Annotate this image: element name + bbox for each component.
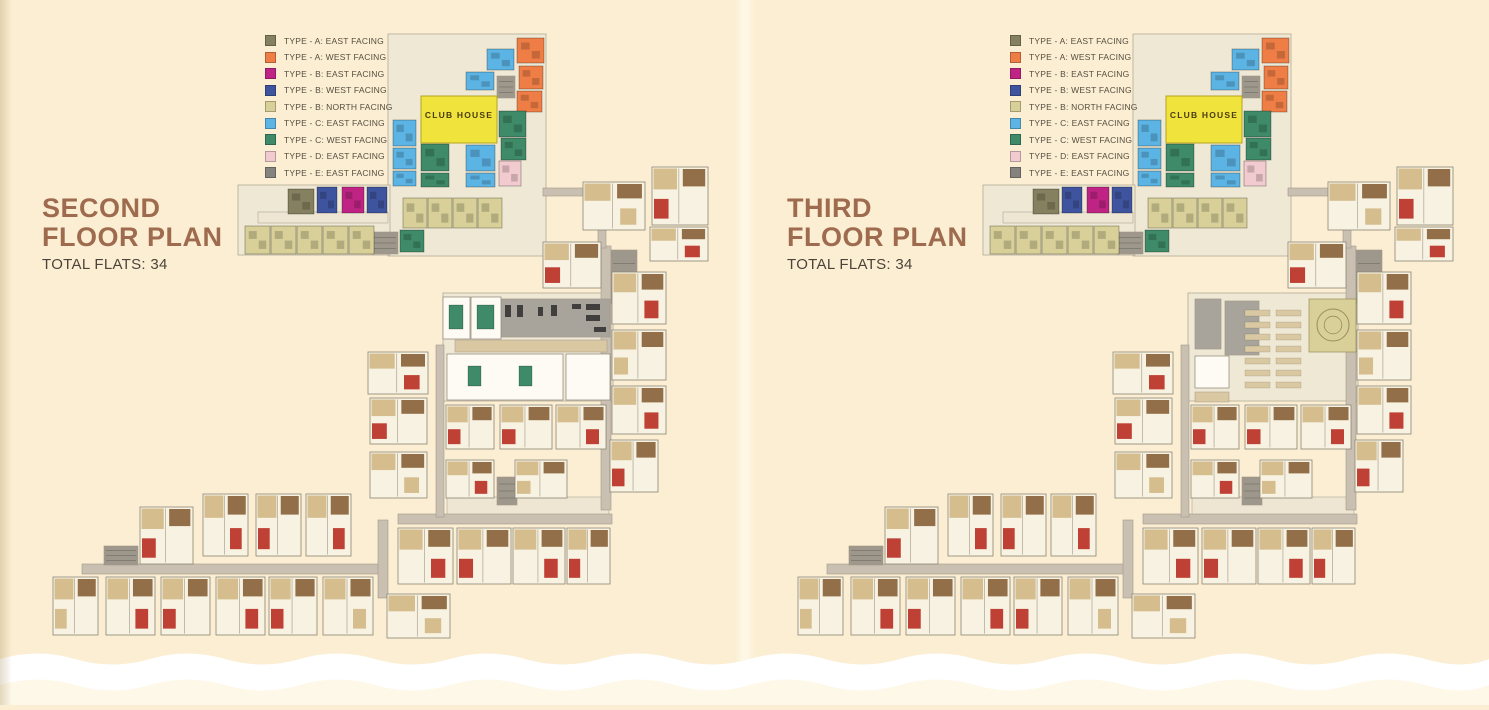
- flat-furniture: [908, 579, 929, 600]
- flat-furniture: [163, 609, 176, 629]
- flat-detail: [521, 43, 530, 50]
- amenity-room: [1195, 356, 1229, 388]
- clubhouse-label: CLUB HOUSE: [1170, 110, 1238, 120]
- flat-furniture: [880, 609, 893, 629]
- flat-furniture: [401, 354, 425, 367]
- page-third-floor: CLUB HOUSE TYPE - A: EAST FACINGTYPE - A…: [745, 0, 1489, 705]
- flat-furniture: [372, 400, 396, 417]
- flat-furniture: [823, 579, 841, 596]
- typed-flat-block: [1211, 173, 1240, 187]
- flat-furniture: [614, 332, 637, 350]
- flat-detail: [292, 194, 300, 201]
- flat-detail: [1260, 149, 1268, 156]
- typed-flat-block: [466, 145, 495, 171]
- flat-furniture: [614, 388, 637, 405]
- flat-furniture: [1247, 407, 1269, 423]
- legend-row: TYPE - C: WEST FACING: [1010, 134, 1138, 145]
- flat-furniture: [142, 538, 156, 557]
- typed-flat-block: [517, 38, 544, 63]
- flat-unit: [1397, 167, 1453, 225]
- flat-detail: [425, 149, 434, 157]
- typed-flat: [428, 198, 452, 228]
- typed-flat: [342, 187, 364, 213]
- typed-flat: [453, 198, 477, 228]
- legend-swatch: [265, 134, 276, 145]
- typed-flat-block: [297, 226, 322, 254]
- flat-furniture: [353, 609, 366, 629]
- legend-label: TYPE - D: EAST FACING: [284, 151, 385, 161]
- typed-flat-block: [1112, 187, 1132, 213]
- flat-unit: [370, 398, 427, 444]
- flat-detail: [1073, 201, 1079, 209]
- page-second-floor: CLUB HOUSE TYPE - A: EAST FACINGTYPE - A…: [0, 0, 744, 705]
- flat-furniture: [1389, 301, 1403, 319]
- legend-swatch: [265, 35, 276, 46]
- typed-flat: [517, 91, 542, 112]
- typed-flat-block: [393, 120, 416, 146]
- typed-flat: [499, 161, 521, 186]
- flat-unit: [323, 577, 373, 635]
- flat-unit: [53, 577, 98, 635]
- typed-flat: [323, 226, 348, 254]
- flat-furniture: [1117, 454, 1141, 471]
- brochure-spread: { "pages": [ {"title_line1":"SECOND","ti…: [0, 0, 1489, 705]
- corridor: [82, 564, 380, 574]
- flat-furniture: [887, 538, 901, 557]
- flat-furniture: [1146, 454, 1169, 468]
- page-title-line-1: THIRD: [787, 194, 968, 223]
- flat-detail: [1151, 134, 1158, 142]
- flat-furniture: [642, 388, 664, 402]
- typed-flat: [1112, 187, 1132, 213]
- flat-unit: [368, 352, 428, 394]
- theatre-seat-row: [1276, 310, 1301, 316]
- typed-flat: [245, 226, 270, 254]
- legend-label: TYPE - C: WEST FACING: [1029, 135, 1132, 145]
- flat-furniture: [545, 267, 560, 283]
- flat-furniture: [1220, 481, 1232, 494]
- flat-furniture: [1399, 199, 1414, 219]
- flat-furniture: [612, 442, 632, 461]
- flat-detail: [1215, 75, 1224, 80]
- flat-furniture: [448, 462, 468, 476]
- typed-flat: [1264, 66, 1288, 89]
- flat-furniture: [135, 609, 148, 629]
- corridor: [378, 520, 388, 598]
- flat-detail: [285, 241, 293, 249]
- flat-furniture: [682, 229, 705, 239]
- typed-flat-block: [1211, 145, 1240, 171]
- flat-detail: [1247, 166, 1254, 173]
- flat-furniture: [1193, 429, 1205, 444]
- flat-detail: [259, 241, 267, 249]
- flat-furniture: [1176, 559, 1190, 578]
- flat-furniture: [558, 407, 579, 423]
- typed-flat-block: [1016, 226, 1041, 254]
- typed-flat: [1087, 187, 1109, 213]
- flat-furniture: [55, 579, 74, 600]
- flat-furniture: [1217, 407, 1236, 420]
- corridor: [827, 564, 1125, 574]
- flat-furniture: [1149, 477, 1164, 493]
- flat-furniture: [1330, 184, 1356, 201]
- flat-unit: [567, 528, 610, 584]
- legend-swatch: [1010, 52, 1021, 63]
- total-flats-label: TOTAL FLATS: 34: [787, 256, 968, 273]
- flat-furniture: [475, 481, 487, 494]
- theatre-seat-row: [1276, 382, 1301, 388]
- amenity-room-tan: [1195, 392, 1229, 402]
- flat-furniture: [644, 412, 658, 428]
- gym-equipment: [594, 327, 606, 332]
- flat-detail: [378, 201, 384, 209]
- flat-detail: [1277, 78, 1284, 85]
- flat-furniture: [1359, 388, 1382, 405]
- gym-equipment: [538, 307, 543, 316]
- typed-flat-block: [1166, 144, 1194, 171]
- legend-row: TYPE - B: EAST FACING: [1010, 68, 1138, 79]
- flat-detail: [1236, 214, 1243, 223]
- flat-unit: [1014, 577, 1062, 635]
- legend-label: TYPE - C: EAST FACING: [284, 118, 385, 128]
- flat-detail: [249, 231, 257, 239]
- typed-flat: [1211, 145, 1240, 171]
- typed-flat: [466, 72, 494, 90]
- flat-detail: [436, 180, 444, 184]
- flat-furniture: [1204, 530, 1227, 550]
- typed-flat-block: [1087, 187, 1109, 213]
- walkway: [1003, 212, 1133, 223]
- flat-detail: [1090, 192, 1097, 199]
- flat-detail: [470, 176, 479, 180]
- page-title-line-2: FLOOR PLAN: [787, 223, 968, 252]
- legend-label: TYPE - B: NORTH FACING: [284, 102, 393, 112]
- flat-unit: [1051, 494, 1096, 556]
- flat-unit: [446, 405, 494, 449]
- flat-furniture: [1204, 559, 1218, 578]
- flat-furniture: [614, 358, 628, 375]
- flat-unit: [1357, 272, 1411, 324]
- flat-unit: [543, 242, 601, 288]
- flat-detail: [1037, 194, 1045, 201]
- flat-furniture: [933, 579, 953, 596]
- flat-furniture: [1145, 530, 1168, 550]
- typed-flat-block: [1232, 49, 1259, 70]
- flat-unit: [583, 182, 645, 230]
- flat-unit: [216, 577, 265, 635]
- flat-furniture: [644, 301, 658, 319]
- typed-flat: [990, 226, 1015, 254]
- flat-unit: [1260, 460, 1312, 498]
- flat-furniture: [575, 244, 598, 258]
- flat-detail: [1115, 192, 1121, 199]
- flat-detail: [515, 149, 523, 156]
- flat-furniture: [1362, 184, 1387, 198]
- flat-furniture: [428, 530, 450, 547]
- flat-furniture: [1098, 609, 1111, 629]
- typed-flat: [421, 144, 449, 171]
- flat-furniture: [1232, 530, 1254, 547]
- flat-furniture: [1076, 496, 1094, 515]
- flat-detail: [396, 152, 403, 158]
- typed-flat-block: [478, 198, 502, 228]
- flat-furniture: [1274, 407, 1295, 420]
- typed-flat-block: [1138, 171, 1161, 186]
- legend-label: TYPE - D: EAST FACING: [1029, 151, 1130, 161]
- flat-furniture: [389, 596, 415, 612]
- typed-flat: [393, 120, 416, 146]
- flat-furniture: [973, 496, 991, 515]
- flat-unit: [203, 494, 248, 556]
- legend-label: TYPE - E: EAST FACING: [284, 168, 384, 178]
- flat-furniture: [1430, 246, 1445, 258]
- flat-detail: [1170, 149, 1179, 157]
- flat-unit: [650, 227, 708, 261]
- gym-equipment: [505, 305, 511, 317]
- flat-furniture: [614, 274, 637, 293]
- typed-flat: [1145, 230, 1169, 252]
- flat-furniture: [654, 169, 678, 190]
- flat-furniture: [612, 469, 624, 487]
- flat-furniture: [878, 579, 898, 596]
- typed-flat-block: [1138, 148, 1161, 169]
- flat-detail: [1170, 176, 1179, 180]
- flat-detail: [1098, 231, 1106, 239]
- flat-detail: [406, 134, 413, 142]
- flat-furniture: [1287, 530, 1308, 547]
- legend-label: TYPE - E: EAST FACING: [1029, 168, 1129, 178]
- flat-furniture: [908, 609, 921, 629]
- flat-unit: [612, 386, 666, 434]
- flat-detail: [1277, 51, 1285, 59]
- flat-detail: [1099, 201, 1106, 209]
- legend-row: TYPE - A: WEST FACING: [1010, 52, 1138, 63]
- flat-furniture: [1117, 423, 1132, 439]
- flat-detail: [327, 231, 335, 239]
- legend-label: TYPE - B: EAST FACING: [1029, 69, 1129, 79]
- flat-furniture: [1329, 407, 1349, 420]
- typed-flat-block: [1033, 189, 1059, 214]
- flat-detail: [1268, 70, 1276, 76]
- flat-furniture: [1387, 274, 1409, 290]
- flat-unit: [1245, 405, 1297, 449]
- typed-flat-block: [1244, 111, 1271, 137]
- legend-label: TYPE - A: WEST FACING: [1029, 52, 1131, 62]
- flat-furniture: [636, 442, 655, 458]
- flat-unit: [556, 405, 606, 449]
- typed-flat: [1166, 144, 1194, 171]
- typed-flat-block: [1166, 173, 1194, 187]
- typed-flat-block: [1042, 226, 1067, 254]
- flat-furniture: [258, 528, 270, 549]
- flat-detail: [441, 214, 448, 223]
- flat-detail: [1202, 203, 1210, 211]
- flat-detail: [1072, 231, 1080, 239]
- flat-detail: [514, 125, 522, 133]
- typed-flat: [1148, 198, 1172, 228]
- flat-furniture: [1146, 354, 1170, 367]
- flat-unit: [398, 528, 453, 584]
- flat-detail: [1215, 150, 1224, 157]
- typed-flat-block: [1211, 72, 1239, 90]
- legend-label: TYPE - A: EAST FACING: [1029, 36, 1129, 46]
- flat-unit: [1132, 594, 1195, 638]
- legend-swatch: [1010, 134, 1021, 145]
- legend-swatch: [265, 68, 276, 79]
- flat-furniture: [404, 477, 419, 493]
- amenity-room: [447, 354, 563, 400]
- typed-flat: [1138, 120, 1161, 146]
- flat-furniture: [281, 496, 299, 515]
- flat-furniture: [487, 530, 509, 547]
- flat-detail: [1082, 241, 1090, 249]
- flat-detail: [1141, 174, 1148, 178]
- flat-furniture: [652, 229, 676, 241]
- flat-furniture: [654, 199, 669, 219]
- flat-furniture: [642, 274, 664, 290]
- typed-flat-block: [453, 198, 477, 228]
- legend-row: TYPE - E: EAST FACING: [1010, 167, 1138, 178]
- flat-furniture: [683, 169, 705, 186]
- typed-flat-block: [1094, 226, 1119, 254]
- flat-unit: [515, 460, 567, 498]
- typed-flat-block: [1062, 187, 1082, 213]
- flat-detail: [345, 192, 352, 199]
- flat-detail: [482, 180, 491, 184]
- legend-label: TYPE - B: WEST FACING: [1029, 85, 1132, 95]
- flat-detail: [1227, 180, 1236, 184]
- gym-equipment: [572, 304, 581, 309]
- legend-row: TYPE - C: EAST FACING: [265, 118, 393, 129]
- theatre-seat-row: [1276, 334, 1301, 340]
- gym-equipment: [586, 315, 600, 321]
- flat-detail: [521, 95, 529, 101]
- corridor: [398, 514, 612, 524]
- flat-detail: [1259, 125, 1267, 133]
- theatre-seat-row: [1245, 382, 1270, 388]
- flat-furniture: [472, 462, 491, 473]
- flat-detail: [1266, 95, 1274, 101]
- legend-swatch: [265, 151, 276, 162]
- flat-detail: [1065, 192, 1071, 199]
- flat-furniture: [1314, 530, 1332, 550]
- typed-flat: [297, 226, 322, 254]
- typed-flat-block: [1246, 138, 1271, 160]
- typed-flat: [1016, 226, 1041, 254]
- wave-decoration: [0, 645, 1489, 705]
- flat-unit: [1115, 452, 1172, 498]
- flat-furniture: [1217, 462, 1236, 473]
- flat-furniture: [1117, 400, 1141, 417]
- typed-flat: [421, 173, 449, 187]
- flat-unit: [961, 577, 1010, 635]
- typed-flat: [1094, 226, 1119, 254]
- flat-unit: [140, 507, 193, 564]
- flat-detail: [436, 158, 444, 166]
- flat-furniture: [218, 579, 239, 600]
- flat-detail: [1181, 180, 1189, 184]
- flat-unit: [652, 167, 708, 225]
- flat-detail: [994, 231, 1002, 239]
- typed-flat: [400, 230, 424, 252]
- flat-furniture: [569, 530, 587, 550]
- typed-flat: [1211, 173, 1240, 187]
- flat-detail: [1248, 116, 1257, 123]
- flat-detail: [1250, 142, 1258, 148]
- legend-label: TYPE - A: EAST FACING: [284, 36, 384, 46]
- legend-row: TYPE - D: EAST FACING: [1010, 151, 1138, 162]
- typed-flat: [517, 38, 544, 63]
- typed-flat-block: [1145, 230, 1169, 252]
- typed-flat-block: [1148, 198, 1172, 228]
- flat-detail: [1186, 214, 1193, 223]
- flat-detail: [505, 142, 513, 148]
- flat-furniture: [988, 579, 1008, 596]
- corridor: [1143, 514, 1357, 524]
- legend-swatch: [1010, 35, 1021, 46]
- flat-furniture: [975, 528, 987, 549]
- flat-detail: [523, 70, 531, 76]
- total-flats-label: TOTAL FLATS: 34: [42, 256, 223, 273]
- flat-furniture: [542, 530, 563, 547]
- legend-row: TYPE - D: EAST FACING: [265, 151, 393, 162]
- typed-flat: [317, 187, 337, 213]
- typed-flat-block: [501, 138, 526, 160]
- flat-furniture: [133, 579, 153, 596]
- corridor: [1181, 345, 1189, 517]
- flat-detail: [502, 60, 510, 66]
- flat-furniture: [1359, 358, 1373, 375]
- flat-furniture: [163, 579, 184, 600]
- flat-furniture: [1260, 530, 1282, 550]
- flat-unit: [269, 577, 317, 635]
- flat-detail: [470, 75, 479, 80]
- flat-furniture: [1115, 354, 1140, 369]
- flat-detail: [320, 192, 326, 199]
- flat-unit: [1191, 460, 1239, 498]
- flat-furniture: [1397, 229, 1421, 241]
- flat-detail: [1227, 203, 1235, 211]
- legend-label: TYPE - B: NORTH FACING: [1029, 102, 1138, 112]
- typed-flat-block: [466, 173, 495, 187]
- flat-detail: [457, 203, 465, 211]
- flat-unit: [1328, 182, 1390, 230]
- typed-flat-block: [519, 66, 543, 89]
- flat-furniture: [887, 509, 909, 530]
- flat-unit: [1202, 528, 1256, 584]
- flat-furniture: [1399, 169, 1423, 190]
- flat-furniture: [990, 609, 1003, 629]
- page-edge-shadow: [0, 0, 12, 705]
- flat-unit: [1191, 405, 1239, 449]
- flat-detail: [413, 241, 420, 248]
- typed-flat: [367, 187, 387, 213]
- legend-row: TYPE - B: NORTH FACING: [265, 101, 393, 112]
- flat-unit: [1115, 398, 1172, 444]
- legend: TYPE - A: EAST FACINGTYPE - A: WEST FACI…: [1010, 35, 1138, 178]
- flat-detail: [407, 203, 415, 211]
- typed-flat: [466, 145, 495, 171]
- flat-furniture: [1003, 528, 1015, 549]
- flat-detail: [1030, 241, 1038, 249]
- flat-furniture: [1389, 412, 1403, 428]
- flat-furniture: [245, 609, 258, 629]
- corridor: [1346, 246, 1356, 510]
- title-block: SECOND FLOOR PLAN TOTAL FLATS: 34: [42, 194, 223, 273]
- theatre-seat-row: [1245, 346, 1270, 352]
- flat-detail: [370, 192, 376, 199]
- flat-detail: [491, 53, 500, 59]
